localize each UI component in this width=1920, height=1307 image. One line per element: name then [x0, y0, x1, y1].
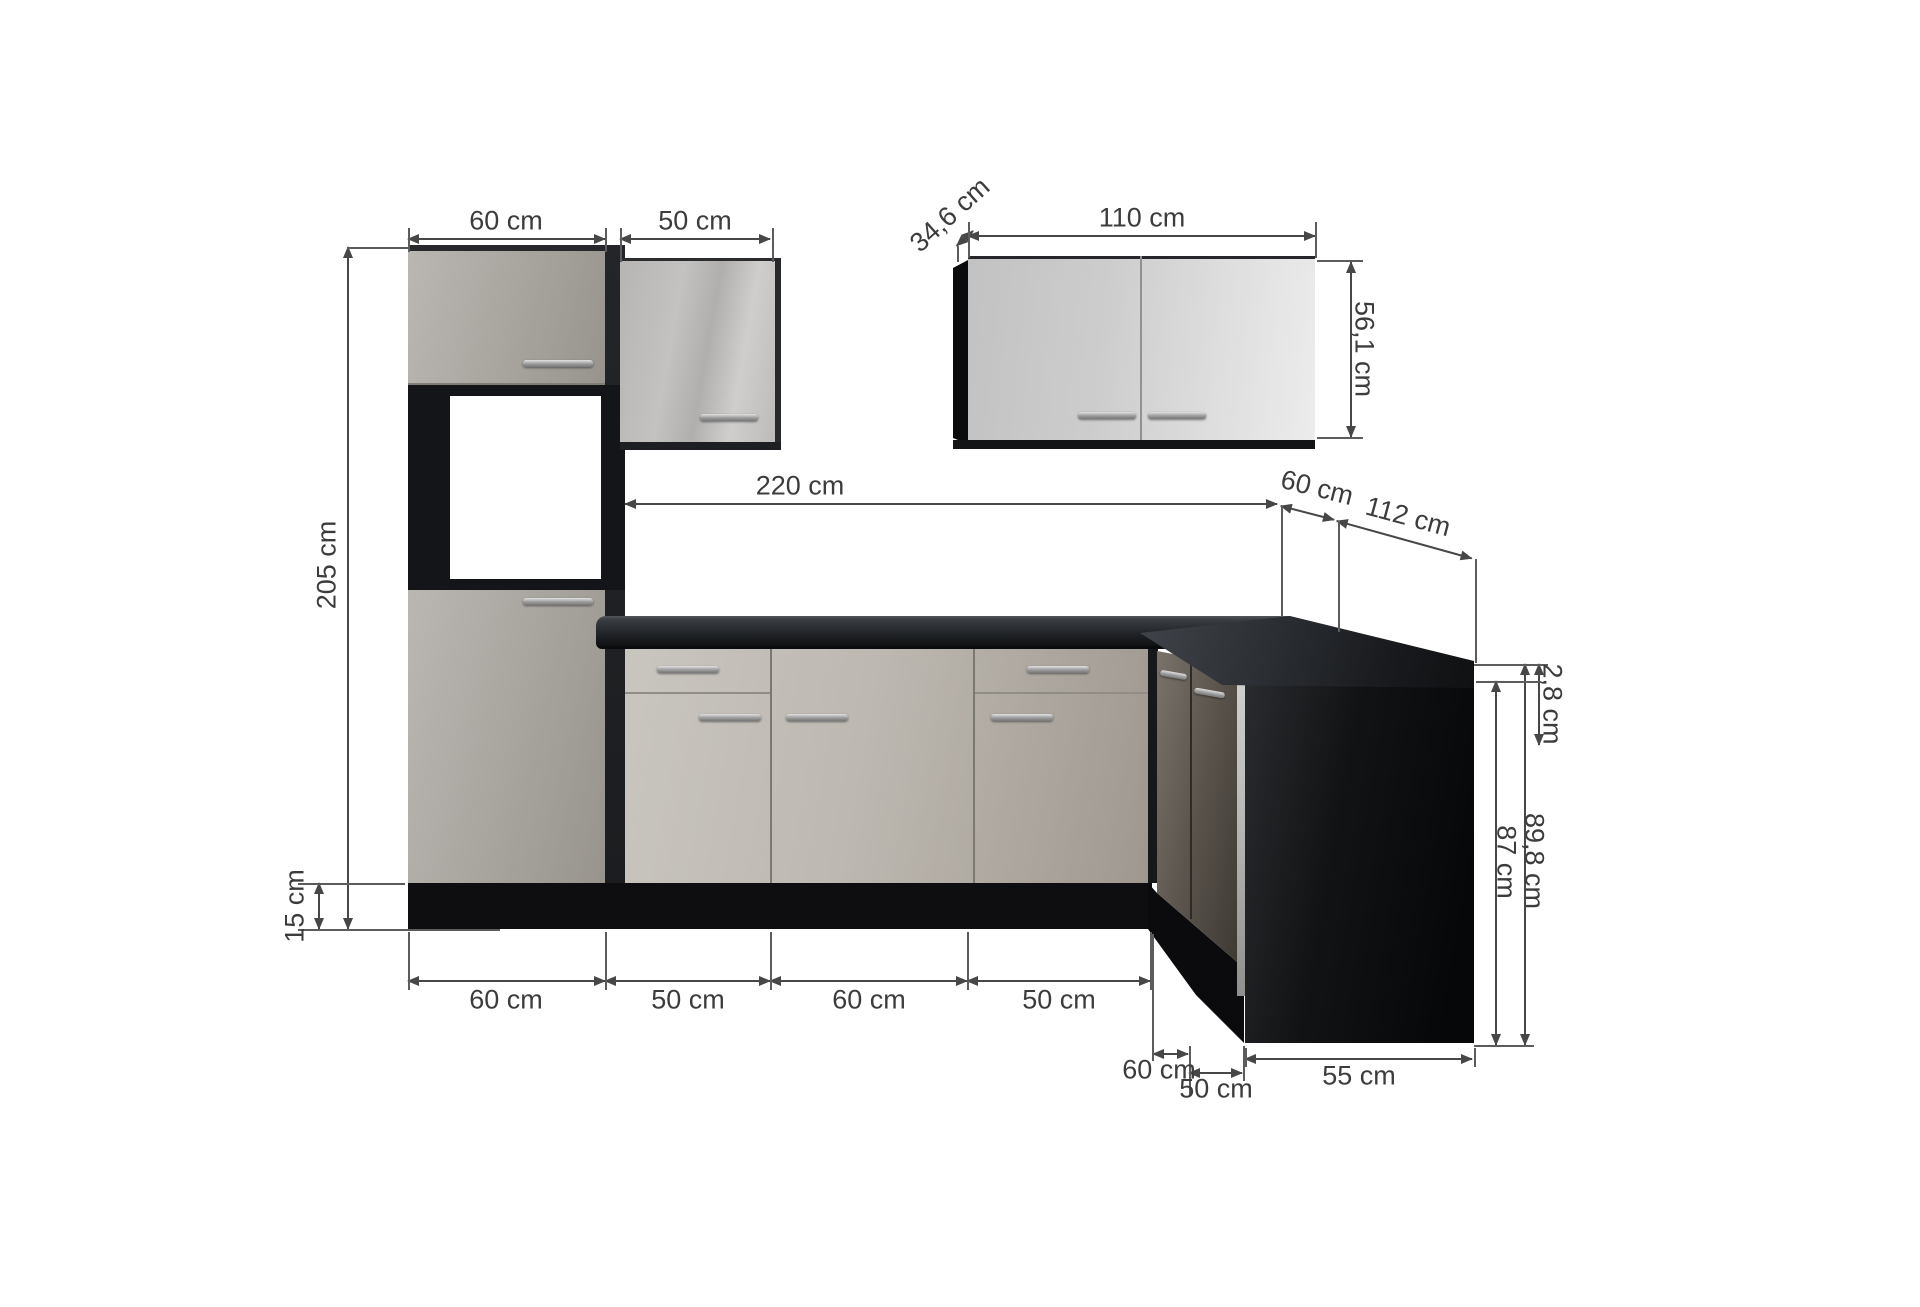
- dim-line: [968, 235, 1315, 237]
- dim-line: [318, 883, 320, 929]
- kitchen-dimension-diagram: 60 cm 50 cm 34,6 cm 110 cm 56,1 cm 205 c…: [0, 0, 1920, 1307]
- oven-compartment-opening: [450, 396, 601, 579]
- extension-line: [1315, 222, 1317, 258]
- extension-line: [1152, 934, 1154, 1061]
- cabinet-split-line: [770, 649, 772, 883]
- drawer-handle: [657, 666, 719, 673]
- extension-line: [1474, 1045, 1534, 1047]
- dim-label-plinth-height: 15 cm: [280, 869, 311, 943]
- dim-line: [956, 230, 974, 246]
- dim-label-run-length: 220 cm: [756, 471, 845, 502]
- extension-line: [770, 932, 772, 990]
- wall-cabinet-110-door-split: [1140, 256, 1142, 440]
- extension-line: [298, 883, 405, 885]
- extension-line: [1338, 521, 1340, 632]
- extension-line: [408, 228, 410, 252]
- door-handle: [700, 414, 758, 421]
- extension-line: [1245, 1048, 1247, 1067]
- door-handle: [1148, 412, 1206, 419]
- door-handle: [523, 360, 593, 367]
- extension-line: [1281, 506, 1283, 617]
- dim-label-island-side: 55 cm: [1322, 1061, 1396, 1092]
- drawer-split-line: [974, 692, 1148, 694]
- extension-line: [1317, 260, 1363, 262]
- dim-line: [347, 247, 349, 929]
- dim-label-return-cab-width: 50 cm: [1179, 1074, 1253, 1105]
- door-handle: [1078, 412, 1136, 419]
- extension-line: [1475, 559, 1477, 663]
- cabinet-split-line: [973, 649, 975, 883]
- dim-label-total-base-height: 89,8 cm: [1519, 813, 1550, 909]
- door-handle: [523, 598, 593, 605]
- corner-door-split: [1190, 658, 1192, 919]
- dim-line: [408, 980, 605, 982]
- dim-line: [620, 238, 770, 240]
- extension-line: [968, 222, 970, 258]
- dim-label-base3-width: 60 cm: [832, 985, 906, 1016]
- drawer-handle: [1027, 666, 1089, 673]
- dim-line: [1280, 505, 1334, 521]
- door-handle: [991, 714, 1053, 721]
- wall-cabinet-50-side-edge: [775, 258, 781, 448]
- wall-cabinet-50-bottom: [620, 442, 781, 450]
- dim-label-base2-width: 50 cm: [651, 985, 725, 1016]
- dim-label-base-height: 87 cm: [1491, 825, 1522, 899]
- extension-line: [408, 932, 410, 990]
- door-handle: [786, 714, 848, 721]
- tall-cabinet-lower-door: [408, 590, 605, 883]
- dim-label-base1-width: 60 cm: [469, 985, 543, 1016]
- extension-line: [347, 247, 408, 249]
- base-cabinet-fronts: [625, 649, 1148, 883]
- island-edge-profile: [1237, 666, 1245, 996]
- island-side-panel: [1245, 662, 1474, 1043]
- extension-line: [1474, 1048, 1476, 1067]
- dim-label-base4-width: 50 cm: [1022, 985, 1096, 1016]
- dim-label-total-height: 205 cm: [312, 521, 343, 610]
- extension-line: [1317, 437, 1363, 439]
- plinth: [408, 883, 1152, 929]
- dim-label-worktop-thickness: 2,8 cm: [1537, 663, 1568, 744]
- wall-cabinet-110-bottom: [953, 440, 1315, 449]
- dim-line: [770, 980, 967, 982]
- drawer-split-line: [625, 692, 771, 694]
- dim-line: [625, 503, 1277, 505]
- extension-line: [957, 246, 959, 262]
- dim-label-return-length: 112 cm: [1362, 491, 1454, 543]
- dim-label-upper-height: 56,1 cm: [1349, 301, 1380, 397]
- extension-line: [605, 932, 607, 990]
- extension-line: [620, 228, 622, 262]
- extension-line: [605, 228, 607, 252]
- extension-line: [1476, 681, 1540, 683]
- extension-line: [298, 929, 500, 931]
- corner-filler-panel: [1148, 649, 1158, 883]
- dim-label-wall-small-width: 50 cm: [658, 206, 732, 237]
- dim-line: [967, 980, 1150, 982]
- dim-label-upper-width: 110 cm: [1099, 203, 1186, 234]
- extension-line: [772, 228, 774, 262]
- dim-label-tall-width: 60 cm: [469, 206, 543, 237]
- door-handle: [699, 714, 761, 721]
- wall-cabinet-110-side-panel: [953, 260, 968, 444]
- dim-line: [408, 238, 605, 240]
- dim-label-upper-depth: 34,6 cm: [904, 171, 996, 258]
- dim-line: [605, 980, 770, 982]
- extension-line: [967, 932, 969, 990]
